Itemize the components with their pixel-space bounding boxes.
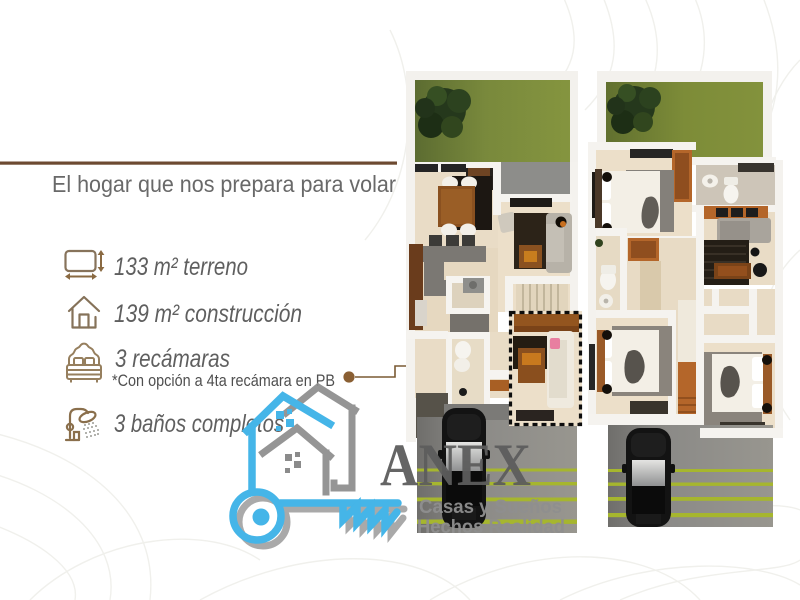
svg-text:ANEX: ANEX (380, 432, 531, 498)
svg-text:Hechos Realidad: Hechos Realidad (417, 517, 565, 538)
svg-text:Casas y Sueños: Casas y Sueños (419, 497, 562, 518)
